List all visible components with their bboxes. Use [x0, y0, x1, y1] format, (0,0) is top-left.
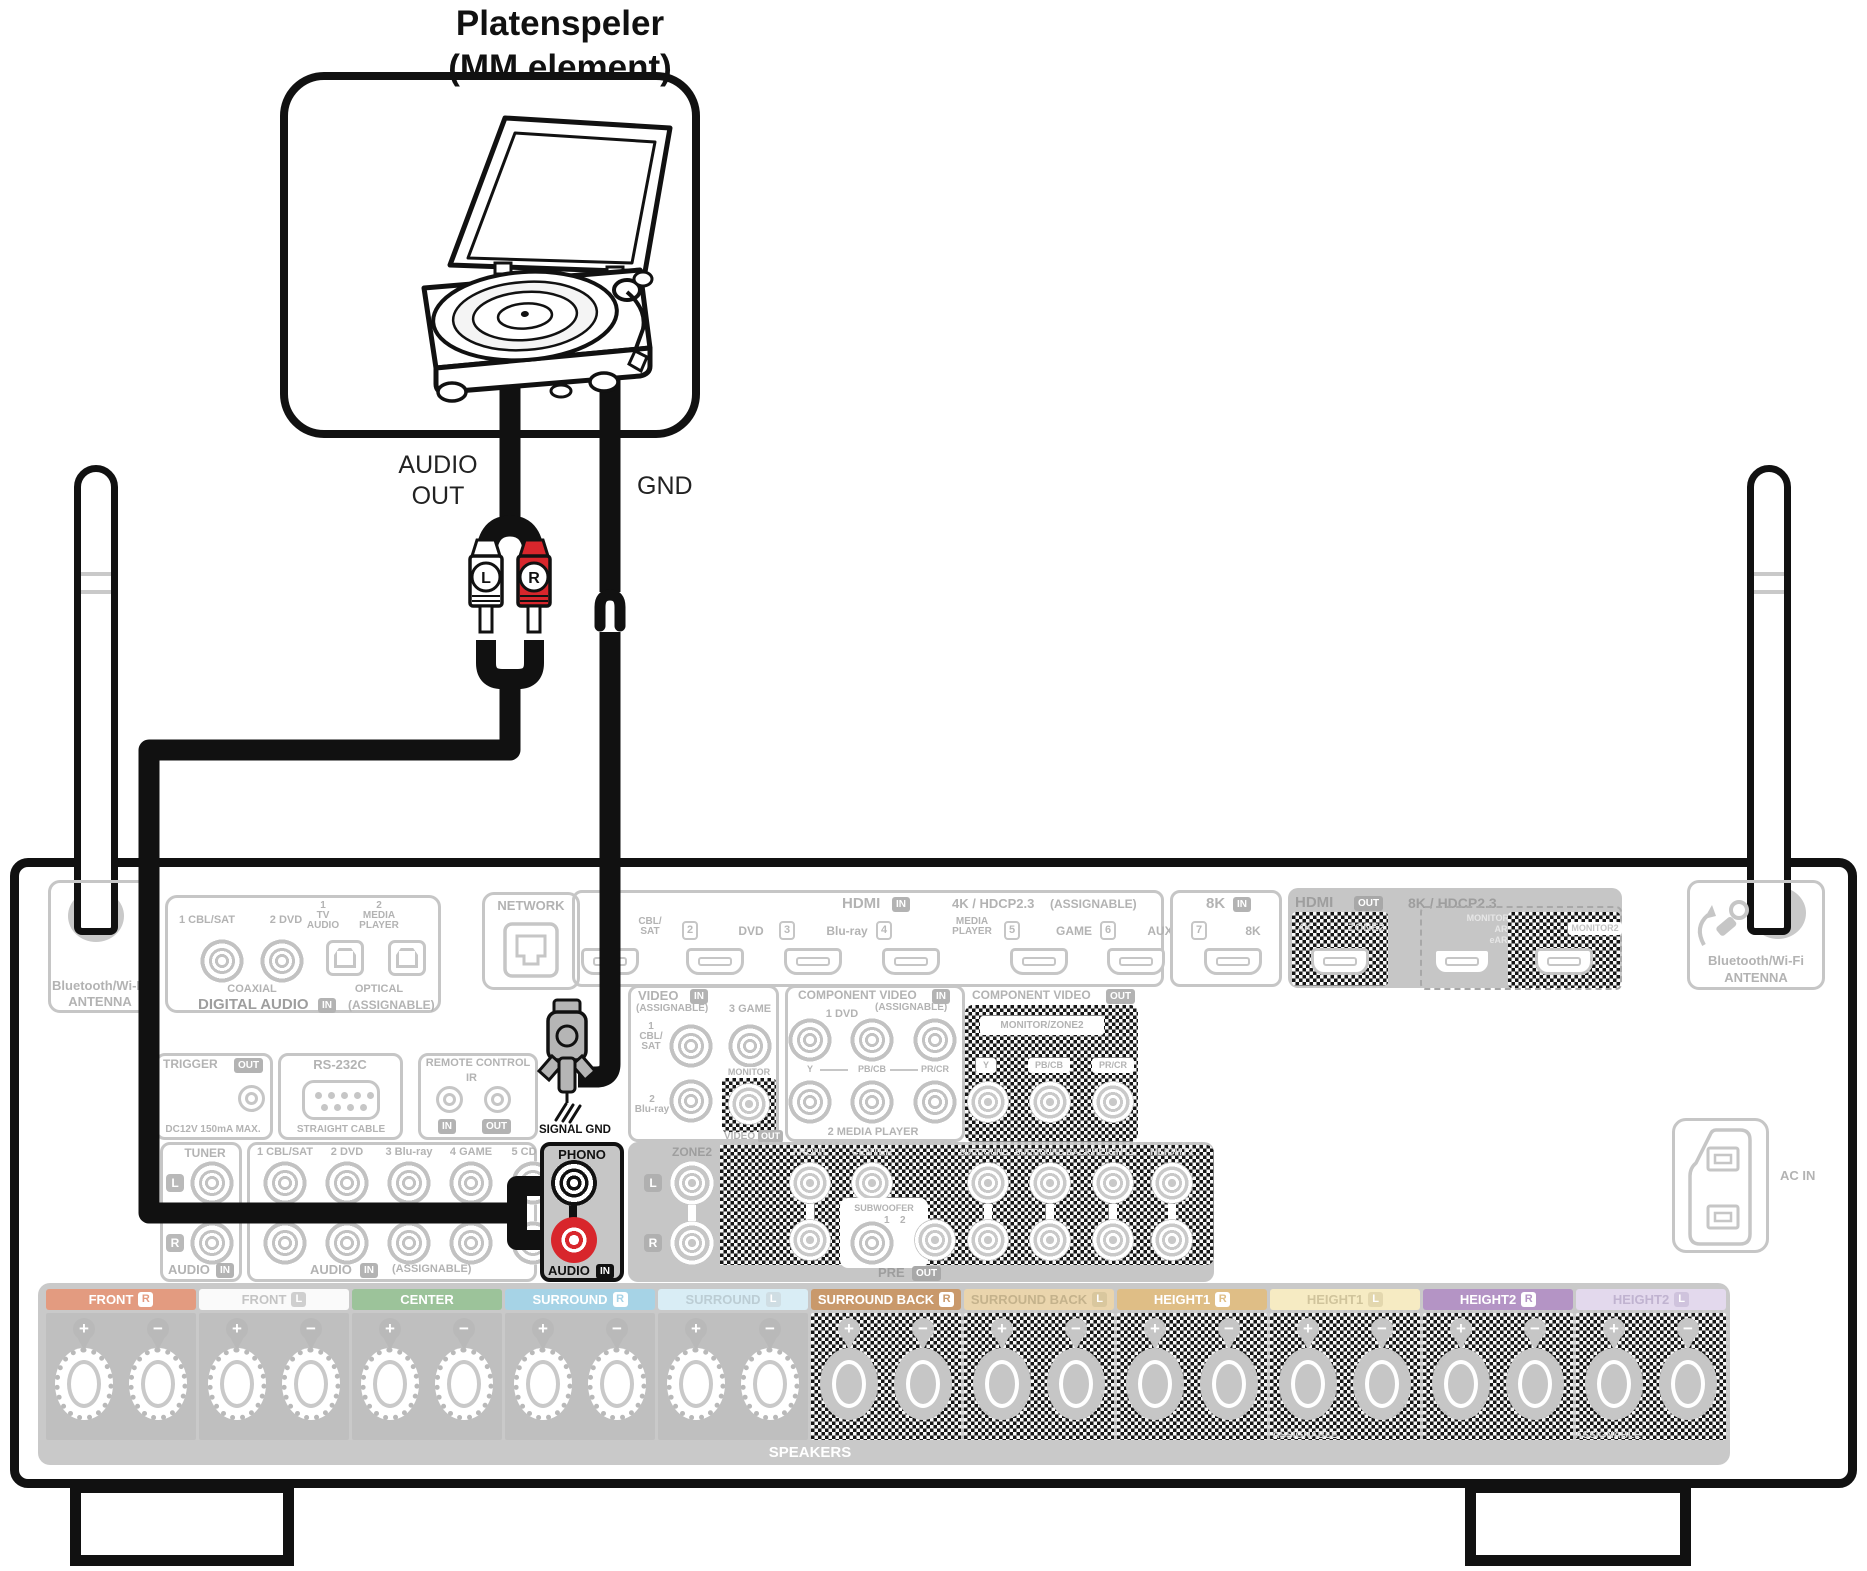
rs232-spec: STRAIGHT CABLE [297, 1124, 385, 1135]
component-in-assignable: (ASSIGNABLE) [875, 1002, 947, 1013]
binding-post [973, 1348, 1031, 1420]
comp-pr-label: PR/CR [921, 1064, 949, 1074]
speaker-section-surround-back-l: SURROUND BACKL +− [964, 1289, 1114, 1441]
analog-c1-label: 1 CBL/SAT [257, 1146, 313, 1158]
remote-ir-in-jack [436, 1086, 463, 1113]
antenna-left-band2 [81, 590, 111, 594]
analog-3l-jack [387, 1161, 431, 1205]
section-header: SURROUND BACKL [964, 1289, 1114, 1310]
analog-audio-label: AUDIO [310, 1262, 352, 1277]
preout-surround-r-jack [967, 1219, 1009, 1261]
hdmi-out-title: HDMI [1295, 894, 1333, 911]
hdmi6-num: 6 [1100, 921, 1116, 940]
hdmi-in-badge: IN [892, 897, 910, 912]
comp-out-pr-jack [1092, 1081, 1134, 1123]
hdmi7-num: 7 [1191, 921, 1207, 940]
preout-bar-height1 [1109, 1204, 1117, 1220]
video-monitor-label: MONITOR [722, 1067, 776, 1078]
trigger-jack [238, 1085, 265, 1112]
comp-dvd-y-jack [788, 1018, 832, 1062]
video-cblsat-jack [669, 1024, 713, 1068]
preout-height1-label: HEIGHT1 [1091, 1147, 1134, 1158]
hdmi4-label: MEDIA PLAYER [952, 917, 992, 937]
ac-inlet [1684, 1124, 1760, 1250]
preout-front-r-jack [789, 1219, 831, 1261]
binding-post [435, 1348, 493, 1420]
comp-y-label: Y [807, 1064, 813, 1074]
section-header: CENTER [352, 1289, 502, 1310]
tuner-r-marker: R [166, 1234, 184, 1252]
hdmi-in-title: HDMI [842, 895, 880, 912]
optical2-label: 2 MEDIA PLAYER [359, 901, 399, 931]
subwoofer-label: SUBWOOFER [854, 1203, 914, 1213]
speaker-section-height2-r: HEIGHT2R +− [1423, 1289, 1573, 1441]
antenna-right-band2 [1754, 590, 1784, 594]
connection-diagram: Platenspeler (MM element) AUDIO OUT GND … [0, 0, 1867, 1571]
comp-pb-label: PB/CB [858, 1064, 886, 1074]
binding-post [208, 1348, 266, 1420]
tuner-l-marker: L [166, 1174, 184, 1192]
comp-dvd-pr-jack [913, 1018, 957, 1062]
analog-2l-jack [325, 1161, 369, 1205]
zone2-title: ZONE2 [672, 1145, 712, 1159]
remote-in-badge: IN [438, 1119, 456, 1134]
preout-surround-l-jack [967, 1162, 1009, 1204]
network-label: NETWORK [497, 898, 564, 913]
preout-height1-r-jack [1092, 1219, 1134, 1261]
coax1-jack [200, 939, 244, 983]
digital-audio-assignable: (ASSIGNABLE) [348, 998, 435, 1012]
binding-post [1659, 1348, 1717, 1420]
section-header: SURROUND BACKR [811, 1289, 961, 1310]
ac-in-label: AC IN [1780, 1168, 1815, 1183]
assignable-height1: ASSIGNABLE [1272, 1430, 1338, 1441]
antenna-right-rod [1747, 465, 1791, 935]
speaker-section-surround-r: SURROUNDR +− [505, 1289, 655, 1441]
video-in-badge: IN [690, 989, 708, 1004]
remote-ir-out-jack [484, 1086, 511, 1113]
diagram-title: Platenspeler [310, 4, 810, 44]
hdmi3-num: 3 [779, 921, 795, 940]
hdmi-out-badge: OUT [1354, 896, 1383, 911]
preout-surroundback-label: SURROUND BACK [1015, 1147, 1091, 1157]
hdmi-port-6 [1107, 948, 1165, 975]
bt-right-label2: ANTENNA [1724, 970, 1788, 985]
video-game-jack [728, 1024, 772, 1068]
optical1-label: 1 TV AUDIO [307, 901, 339, 931]
binding-post [282, 1348, 340, 1420]
hdmi2-num: 2 [682, 921, 698, 940]
analog-1l-jack [263, 1161, 307, 1205]
remote-title: REMOTE CONTROL [426, 1057, 531, 1069]
analog-4r-jack [449, 1221, 493, 1265]
comp-out-pb-label: PB/CB [1028, 1058, 1070, 1073]
phono-l-jack [551, 1160, 597, 1206]
component-dvd-label: 1 DVD [826, 1008, 858, 1020]
receiver-foot-left [70, 1482, 294, 1566]
audio-cable-bracket [486, 640, 534, 679]
coax2-jack [260, 939, 304, 983]
phono-audio-label: AUDIO [548, 1263, 590, 1278]
preout-height2-label: HEIGHT2 [1150, 1147, 1193, 1158]
analog-2r-jack [325, 1221, 369, 1265]
speaker-section-height2-l: HEIGHT2L +− [1576, 1289, 1726, 1441]
binding-post [55, 1348, 113, 1420]
hdmi-in-assignable: (ASSIGNABLE) [1050, 897, 1137, 911]
phono-title: PHONO [558, 1147, 606, 1162]
section-header: HEIGHT1L [1270, 1289, 1420, 1310]
speaker-section-height1-r: HEIGHT1R +− [1117, 1289, 1267, 1441]
section-header: SURROUNDL [658, 1289, 808, 1310]
hdmi5-num: 5 [1004, 921, 1020, 940]
antenna-right-band [1754, 572, 1784, 576]
analog-in-badge: IN [360, 1263, 378, 1278]
comp-out-pr-label: PR/CR [1092, 1058, 1134, 1073]
speaker-section-surround-back-r: SURROUND BACKR +− [811, 1289, 961, 1441]
preout-bar-height2 [1168, 1204, 1176, 1220]
svg-text:R: R [528, 570, 540, 587]
binding-post [1585, 1348, 1643, 1420]
comp-dash2 [890, 1069, 918, 1071]
antenna-left-band [81, 572, 111, 576]
hdmi-in-spec: 4K / HDCP2.3 [952, 896, 1034, 911]
binding-post [1047, 1348, 1105, 1420]
tuner-audio-label: AUDIO [168, 1262, 210, 1277]
zone2-connector [688, 1205, 696, 1221]
coax2-label: 2 DVD [270, 914, 302, 926]
gnd-label: GND [637, 472, 693, 501]
binding-post [1126, 1348, 1184, 1420]
section-header: SURROUNDR [505, 1289, 655, 1310]
component-in-title: COMPONENT VIDEO [798, 988, 917, 1002]
hdmi-out-4k-label: 4K [1298, 922, 1312, 934]
speaker-section-height1-l: HEIGHT1L +− [1270, 1289, 1420, 1441]
binding-post [1506, 1348, 1564, 1420]
video-bluray-label: 2 Blu-ray [635, 1095, 669, 1115]
trigger-out-badge: OUT [234, 1058, 263, 1073]
subwoofer-2: 2 [900, 1215, 906, 1226]
bt-left-label2: ANTENNA [68, 994, 132, 1009]
comp-media-y-jack [788, 1080, 832, 1124]
phono-r-jack [551, 1217, 597, 1263]
preout-height2-r-jack [1151, 1219, 1193, 1261]
hdmi-port-4 [882, 948, 940, 975]
turntable-container-box [280, 72, 700, 438]
video-in-title: VIDEO [638, 988, 678, 1003]
speaker-section-front-l: FRONTL +− [199, 1289, 349, 1441]
svg-text:L: L [481, 570, 491, 587]
tuner-in-badge: IN [216, 1263, 234, 1278]
section-header: HEIGHT1R [1117, 1289, 1267, 1310]
component-out-title: COMPONENT VIDEO [972, 988, 1091, 1002]
video-game-label: 3 GAME [729, 1003, 771, 1015]
hdmi2-label: DVD [738, 924, 763, 938]
hdmi3-label: Blu-ray [826, 924, 867, 938]
binding-post [1200, 1348, 1258, 1420]
hdmi-8k-title: 8K [1206, 895, 1225, 912]
comp-out-y-jack [967, 1081, 1009, 1123]
bt-left-label1: Bluetooth/Wi-Fi [52, 978, 148, 993]
preout-front-label: FRONT [793, 1147, 827, 1158]
rs232-port [302, 1080, 380, 1120]
optical1-port [326, 940, 364, 976]
hdmi-out-monitor1-port [1433, 948, 1491, 975]
hdmi-out-zone2-port [1311, 948, 1369, 975]
binding-post [1353, 1348, 1411, 1420]
binding-post [894, 1348, 952, 1420]
analog-4l-jack [449, 1161, 493, 1205]
hdmi-port-3 [784, 948, 842, 975]
binding-post [1279, 1348, 1337, 1420]
hdmi-out-monitor2-port [1535, 948, 1593, 975]
analog-c3-label: 3 Blu-ray [385, 1146, 432, 1158]
analog-3r-jack [387, 1221, 431, 1265]
preout-surroundback-r-jack [1029, 1219, 1071, 1261]
hdmi-port-2 [686, 948, 744, 975]
preout-subwoofer2-jack [914, 1219, 956, 1261]
preout-bar-surroundback [1046, 1204, 1054, 1220]
video-monitor-jack [728, 1083, 770, 1125]
preout-bar-front [806, 1204, 814, 1220]
rca-plug-left: L [470, 540, 502, 632]
zone2-r-marker: R [644, 1234, 662, 1252]
coaxial-label: COAXIAL [227, 983, 277, 995]
speaker-section-center: CENTER +− [352, 1289, 502, 1441]
hdmi-port-1 [581, 948, 639, 975]
preout-subwoofer1-jack [850, 1221, 894, 1265]
binding-post [741, 1348, 799, 1420]
comp-out-y-label: Y [976, 1058, 996, 1073]
rs232-title: RS-232C [313, 1057, 366, 1072]
optical2-port [388, 940, 426, 976]
tuner-r-jack [190, 1221, 234, 1265]
antenna-left-rod [74, 465, 118, 935]
binding-post [588, 1348, 646, 1420]
hdmi1-label: CBL/ SAT [638, 917, 661, 937]
preout-center-label: CENTER [851, 1147, 892, 1158]
preout-front-l-jack [789, 1162, 831, 1204]
comp-media-pr-jack [913, 1080, 957, 1124]
video-in-assignable: (ASSIGNABLE) [636, 1003, 708, 1014]
audio-cable-bend [486, 526, 534, 560]
remote-ir-label: IR [466, 1072, 477, 1084]
binding-post [820, 1348, 878, 1420]
hdmi7-label: 8K [1245, 924, 1260, 938]
zone2-l-marker: L [644, 1174, 662, 1192]
hdmi-out-monitor1-label: MONITOR1 ARC eARC [1462, 913, 1514, 946]
speaker-section-surround-l: SURROUNDL +− [658, 1289, 808, 1441]
binding-post [667, 1348, 725, 1420]
hdmi-8k-in-badge: IN [1233, 897, 1251, 912]
video-cblsat-label: 1 CBL/ SAT [639, 1022, 662, 1052]
comp-out-pb-jack [1029, 1081, 1071, 1123]
preout-pre-label: PRE [878, 1265, 905, 1280]
section-header: HEIGHT2R [1423, 1289, 1573, 1310]
section-header: HEIGHT2L [1576, 1289, 1726, 1310]
binding-post [129, 1348, 187, 1420]
hdmi5-label: GAME [1056, 924, 1092, 938]
bt-right-label1: Bluetooth/Wi-Fi [1708, 953, 1804, 968]
hdmi6-label: AUX [1147, 924, 1172, 938]
rca-plug-right: R [518, 540, 550, 632]
component-out-badge: OUT [1106, 989, 1135, 1004]
assignable-height2: ASSIGNABLE [1575, 1430, 1641, 1441]
preout-surround-label: SURROUND [959, 1147, 1008, 1157]
analog-1r-jack [263, 1221, 307, 1265]
digital-audio-in-badge: IN [318, 998, 336, 1013]
remote-out-badge: OUT [482, 1119, 511, 1134]
speaker-section-front-r: FRONTR + − [46, 1289, 196, 1441]
trigger-title: TRIGGER [163, 1057, 218, 1071]
comp-media-pb-jack [850, 1080, 894, 1124]
hdmi4-num: 4 [876, 921, 892, 940]
receiver-foot-right [1465, 1482, 1691, 1566]
hdmi-out-monitor2-label: MONITOR2 [1568, 922, 1622, 935]
comp-dvd-pb-jack [850, 1018, 894, 1062]
coax1-label: 1 CBL/SAT [179, 914, 235, 926]
zone2-l-jack [670, 1161, 714, 1205]
digital-audio-title: DIGITAL AUDIO [198, 996, 309, 1013]
phono-in-badge: IN [596, 1264, 614, 1279]
component-out-monitor-label: MONITOR/ZONE2 [980, 1016, 1104, 1035]
preout-surroundback-l-jack [1029, 1162, 1071, 1204]
audio-out-label: AUDIO OUT [372, 450, 504, 512]
gnd-spade-connector [600, 595, 620, 626]
analog-c2-label: 2 DVD [331, 1146, 363, 1158]
analog-assignable: (ASSIGNABLE) [392, 1263, 471, 1275]
tuner-title: TUNER [184, 1146, 225, 1160]
signal-gnd-label: SIGNAL GND [539, 1124, 611, 1136]
binding-post [361, 1348, 419, 1420]
tuner-l-jack [190, 1161, 234, 1205]
binding-post [1432, 1348, 1490, 1420]
preout-height1-l-jack [1092, 1162, 1134, 1204]
section-header: FRONTR [46, 1289, 196, 1310]
zone2-r-jack [670, 1221, 714, 1265]
optical-label: OPTICAL [355, 983, 403, 995]
preout-out-badge: OUT [912, 1266, 941, 1281]
trigger-spec: DC12V 150mA MAX. [165, 1124, 260, 1135]
analog-c4-label: 4 GAME [450, 1146, 492, 1158]
component-media-label: 2 MEDIA PLAYER [828, 1126, 919, 1138]
comp-dash1 [820, 1069, 848, 1071]
coax-screw-icon [1690, 893, 1752, 957]
section-header: FRONTL [199, 1289, 349, 1310]
speakers-strip-label: SPEAKERS [769, 1444, 852, 1461]
preout-bar-surround [984, 1204, 992, 1220]
hdmi-port-7 [1204, 948, 1262, 975]
hdmi-out-zone2-label: ZONE2 [1348, 922, 1385, 934]
video-bluray-jack [669, 1079, 713, 1123]
hdmi-port-5 [1010, 948, 1068, 975]
binding-post [514, 1348, 572, 1420]
rj45-port [503, 922, 559, 980]
video-out-title: VIDEO [724, 1131, 755, 1142]
analog-c5-label: 5 CD [511, 1146, 536, 1158]
preout-height2-l-jack [1151, 1162, 1193, 1204]
